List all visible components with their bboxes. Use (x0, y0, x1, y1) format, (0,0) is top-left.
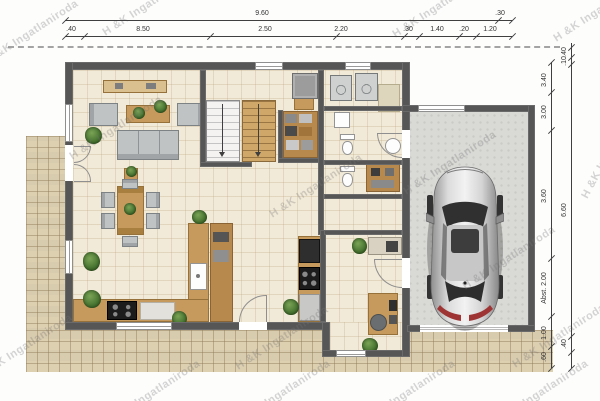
dishwasher (140, 302, 175, 320)
pantry-box (286, 140, 299, 150)
sideboard-item (115, 83, 123, 89)
office-chair (370, 314, 387, 331)
cabinet-item (371, 168, 380, 176)
tall-unit-item (213, 232, 229, 242)
dimension-label: 6.60 (561, 203, 568, 217)
dimension-label: 1.40 (430, 26, 444, 33)
dimension-label: 3.40 (541, 73, 548, 87)
dimension-label: 9.60 (255, 10, 269, 17)
wall-left (65, 62, 73, 330)
hall-desk (294, 98, 314, 110)
bath-sink (334, 112, 350, 128)
wall-wc (324, 194, 402, 199)
pantry-box (299, 114, 312, 123)
window-garage (418, 105, 465, 112)
dimension-label: 1.20 (483, 26, 497, 33)
dimension-label: 8.50 (136, 26, 150, 33)
wall-utility (324, 106, 402, 111)
dining-chair (101, 213, 115, 229)
stairs-arrowhead-right (255, 152, 261, 157)
dimension-label: .10 (561, 56, 568, 66)
pantry-box (285, 114, 297, 123)
wall-pantry-bottom (278, 158, 321, 163)
dimension-label: .30 (403, 26, 413, 33)
washing-machine (330, 75, 352, 101)
cabinet-item (371, 180, 394, 188)
wall-pantry-left (278, 110, 283, 163)
window-top-1 (255, 62, 283, 70)
wall-plant (83, 252, 100, 271)
dining-chair (122, 179, 138, 189)
window-bottom (116, 322, 172, 330)
dimension-label: .60 (541, 352, 548, 362)
window-left-upper (65, 104, 73, 142)
shower (292, 73, 318, 99)
office-printer (386, 241, 398, 252)
dimension-label: .20 (459, 26, 469, 33)
wall-office-top (324, 230, 402, 235)
pantry-box (299, 127, 312, 136)
stairs-arrow-down (258, 104, 259, 154)
kitchen-door-opening (239, 322, 267, 330)
wall-under-stairs (200, 162, 252, 167)
dimension-tick (509, 17, 516, 24)
dimension-line-right-inner (551, 62, 552, 368)
dimension-label: 2.20 (334, 26, 348, 33)
car-top-view (426, 163, 504, 331)
counter-plant (83, 290, 101, 308)
kitchen-door-leaf (266, 295, 267, 322)
dimension-label: 1.00 (541, 326, 548, 340)
watermark-text: H &K Ingatlaniroda (579, 99, 600, 200)
office-door-opening (402, 258, 410, 288)
stairs-arrow-up (222, 104, 223, 154)
stairs-arrowhead-left (219, 152, 225, 157)
tall-unit-item (213, 250, 229, 262)
dining-chair (146, 192, 160, 208)
dimension-line-overall-width (65, 20, 512, 21)
cooktop (107, 301, 137, 320)
dimension-tick (509, 33, 516, 40)
toilet-bowl (342, 141, 353, 155)
dining-chair (122, 236, 138, 247)
office-shelf-plant (352, 238, 367, 254)
dimension-label: 3.60 (541, 189, 548, 203)
terrace-door-leaf (74, 181, 91, 182)
sideboard-item (146, 83, 156, 89)
property-boundary-line (8, 46, 560, 48)
oven-cooktop (299, 267, 320, 290)
island-plant (192, 210, 207, 224)
dryer (355, 73, 378, 101)
fridge (299, 239, 320, 263)
window-top-2 (345, 62, 371, 70)
entry-door-opening (402, 130, 410, 158)
dimension-label: Abst. 2.00 (541, 272, 548, 304)
dining-chair (146, 213, 160, 229)
toilet-tank (340, 134, 355, 140)
dimension-line-right-outer (571, 43, 572, 368)
window-left-lower (65, 240, 73, 274)
sideboard (103, 80, 167, 93)
kitchen-floor-plant (283, 299, 299, 315)
dimension-label: .40 (66, 26, 76, 33)
pantry-box (285, 126, 297, 136)
faucet (196, 274, 200, 278)
dining-chair (101, 192, 115, 208)
watermark-text: H &K Ingatlaniroda (551, 0, 600, 44)
side-table-plant (126, 166, 137, 177)
pantry-box (301, 140, 313, 150)
wall-column-left (318, 70, 324, 235)
sofa (117, 130, 179, 160)
dimension-label: 3.00 (541, 105, 548, 119)
dimension-line-width-detail (65, 36, 512, 37)
window-office-bay (336, 350, 366, 357)
floor-plan-canvas: H &K IngatlanirodaH &K IngatlanirodaH &K… (0, 0, 600, 401)
wall-stair (200, 70, 206, 166)
desk-monitor (389, 300, 397, 311)
dimension-label: .30 (495, 10, 505, 17)
dimension-label: 2.50 (258, 26, 272, 33)
wall-garage-right (528, 105, 535, 332)
dining-table-plant (124, 203, 136, 215)
dimension-label: .40 (561, 339, 568, 349)
cabinet-item (385, 168, 394, 176)
desk-item (389, 315, 397, 324)
